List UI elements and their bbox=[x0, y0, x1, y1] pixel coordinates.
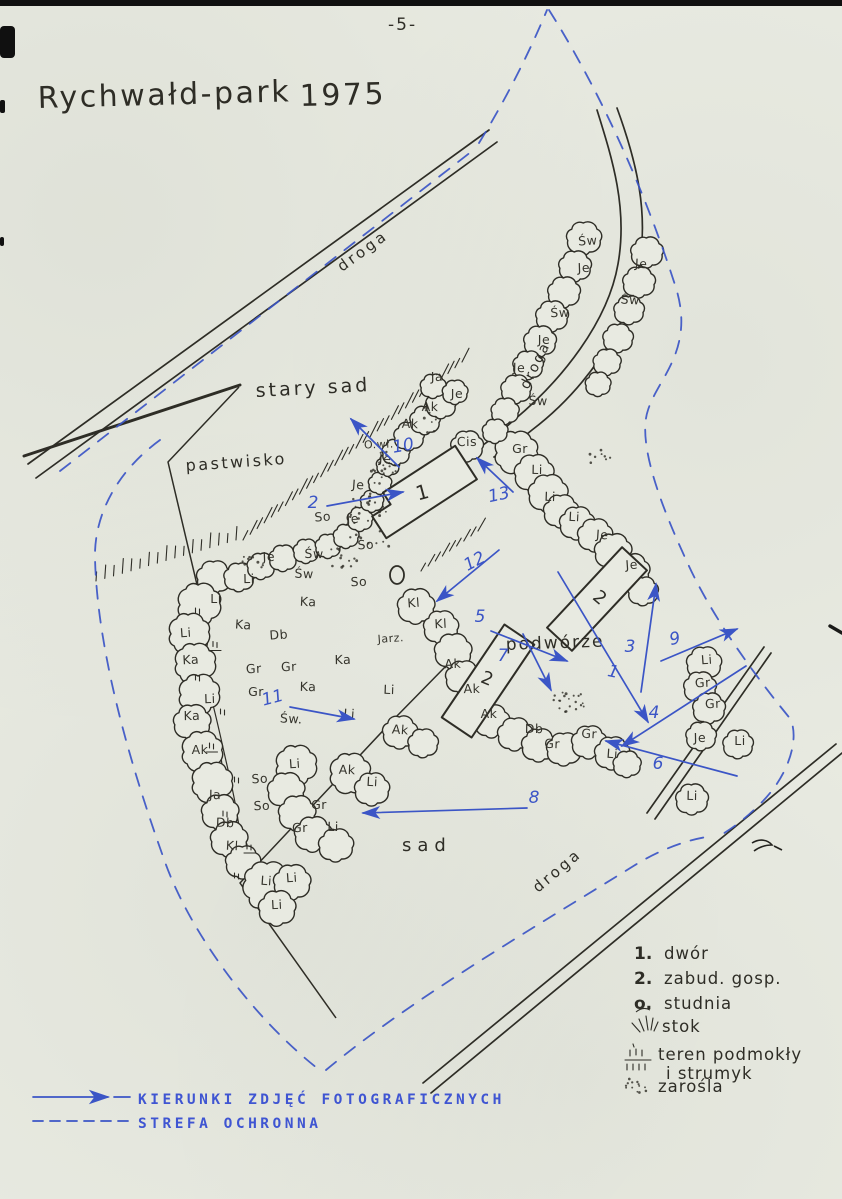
scrub-dot bbox=[426, 431, 429, 434]
photo-direction-arrows: 12345678910111213 bbox=[260, 419, 746, 813]
scrub-dot bbox=[375, 542, 377, 544]
scrub-dot bbox=[580, 693, 582, 695]
slope-hatch-stroke bbox=[307, 476, 313, 488]
map-label: droga bbox=[334, 226, 392, 275]
slope-hatch-stroke bbox=[210, 533, 211, 548]
tree-label: Ak bbox=[481, 706, 498, 721]
scrub-dot bbox=[582, 702, 584, 704]
slope-hatch-stroke bbox=[328, 460, 334, 471]
tree-label: Li bbox=[210, 591, 221, 606]
tree-label: Li bbox=[606, 746, 618, 762]
edge-mark bbox=[830, 626, 842, 633]
scrub-dot bbox=[381, 469, 384, 472]
scrub-dot bbox=[353, 557, 355, 559]
legend-label-slope: stok bbox=[662, 1017, 701, 1036]
scrub-dot bbox=[330, 548, 332, 550]
scrub-dot bbox=[378, 514, 381, 517]
page-year: 1975 bbox=[299, 77, 386, 114]
tree-label: O.wł. bbox=[364, 437, 394, 451]
slope-hatch-stroke bbox=[243, 531, 248, 540]
tree-cloud bbox=[482, 419, 508, 443]
tree-label: Św bbox=[578, 233, 598, 249]
slope-hatch-stroke bbox=[413, 390, 419, 402]
tree-label: Św bbox=[304, 546, 323, 561]
tree-label: Li bbox=[285, 870, 297, 886]
scrub-dot bbox=[252, 556, 255, 559]
scrub-dot bbox=[379, 530, 381, 532]
tree-cloud bbox=[585, 372, 611, 396]
tree-label: Kl bbox=[407, 595, 421, 611]
tree-label: Li bbox=[243, 571, 255, 586]
map-label: sad bbox=[402, 835, 452, 856]
slope-hatch-stroke bbox=[285, 492, 292, 506]
slope-hatch-stroke bbox=[335, 450, 343, 465]
slope-hatch-stroke bbox=[278, 502, 283, 511]
slope-hatch-stroke bbox=[300, 479, 308, 494]
scrub-dot bbox=[392, 471, 394, 473]
scrub-icon bbox=[625, 1078, 647, 1094]
slope-hatch-stroke bbox=[105, 565, 106, 578]
photo-arrow-number-12: 12 bbox=[460, 548, 488, 576]
tree-label: Ka bbox=[300, 594, 317, 610]
photo-arrow-number-13: 13 bbox=[486, 483, 511, 507]
scrub-dot bbox=[340, 554, 342, 556]
photo-arrow-number-3: 3 bbox=[625, 637, 636, 657]
tree-label: Gr bbox=[694, 675, 711, 691]
tree-label: Li bbox=[383, 682, 395, 697]
slope-hatch-stroke bbox=[377, 419, 383, 431]
scrub-dot bbox=[638, 1091, 641, 1094]
scrub-dot bbox=[242, 560, 244, 562]
slope-hatch-stroke bbox=[166, 546, 167, 561]
tree-label: Gr bbox=[311, 797, 327, 812]
slope-hatch-stroke bbox=[201, 540, 202, 551]
scrub-dot bbox=[382, 506, 384, 508]
tree-label: Ka bbox=[300, 679, 317, 694]
tree-label: Li bbox=[366, 774, 378, 790]
slope-hatch-stroke bbox=[236, 527, 237, 540]
slope-hatch-stroke bbox=[157, 553, 158, 564]
tree-label: Św bbox=[294, 566, 314, 582]
marsh-icon bbox=[625, 1044, 651, 1070]
tree-label: Ka bbox=[182, 652, 199, 668]
slope-hatch-stroke bbox=[450, 541, 456, 551]
protection-zone-label: STREFA OCHRONNA bbox=[138, 1116, 321, 1132]
tree-label: Db bbox=[269, 626, 289, 642]
photo-arrow-number-8: 8 bbox=[529, 788, 540, 808]
scrub-dot bbox=[256, 561, 259, 564]
scrub-dot bbox=[568, 698, 570, 700]
slope-hatch-stroke bbox=[271, 505, 277, 517]
scrub-dot bbox=[372, 469, 374, 471]
photo-arrow-number-1: 1 bbox=[606, 661, 621, 683]
tree-label: Li bbox=[531, 462, 543, 477]
scanned-map-page: LiKaLiKaAkJaDbKlLiLiLiJeLiLiŚwŚwKaKaDbGr… bbox=[0, 0, 842, 1199]
tree-label: Gr bbox=[281, 659, 298, 675]
slope-hatch-stroke bbox=[184, 546, 185, 555]
scrub-dot bbox=[355, 559, 358, 562]
scrub-dot bbox=[628, 1078, 631, 1081]
tree-label: Św. bbox=[280, 710, 303, 726]
scrub-dot bbox=[554, 694, 556, 696]
scrub-dot bbox=[553, 699, 555, 701]
tree-label: Je bbox=[450, 386, 463, 401]
tree-label: Gr bbox=[292, 820, 308, 835]
slope-hatch-stroke bbox=[464, 529, 471, 541]
slope-hatch-stroke bbox=[398, 403, 404, 414]
tree-label: Je bbox=[261, 549, 275, 564]
tree-label: Gr bbox=[512, 441, 528, 456]
tree-cloud bbox=[593, 349, 621, 376]
scrub-dot bbox=[558, 700, 560, 702]
scrub-dot bbox=[355, 506, 357, 508]
scrub-dot bbox=[374, 501, 376, 503]
slope-hatch-stroke bbox=[250, 521, 257, 535]
scrub-dot bbox=[627, 1082, 629, 1084]
scrub-dot bbox=[339, 557, 342, 560]
tree-label: Li bbox=[734, 733, 745, 748]
map-label: pastwisko bbox=[185, 449, 288, 475]
photo-arrow-8 bbox=[363, 808, 527, 813]
tree-label: Ja bbox=[208, 787, 222, 802]
scrub-dot bbox=[609, 457, 611, 459]
tree-label: Li bbox=[327, 819, 339, 834]
scrub-dot bbox=[243, 556, 245, 558]
tree-label: Kl bbox=[434, 616, 447, 632]
tree-label: Ak bbox=[422, 399, 439, 414]
slope-hatch-stroke bbox=[321, 463, 328, 477]
scrub-dot bbox=[604, 455, 606, 457]
legend-label-well: studnia bbox=[664, 994, 732, 1013]
scrub-dot bbox=[369, 492, 372, 495]
tree-label: Li bbox=[544, 489, 556, 504]
scrub-dot bbox=[384, 468, 387, 471]
tree-label: Je bbox=[576, 260, 590, 275]
tree-label: Li bbox=[686, 788, 698, 803]
legend-key-farm: 2. bbox=[634, 969, 652, 989]
tree-label: Ka bbox=[334, 652, 351, 667]
tree-label: Św bbox=[528, 393, 548, 409]
scrub-dot bbox=[636, 1091, 638, 1093]
scrub-dot bbox=[385, 511, 387, 513]
slope-hatch-stroke bbox=[428, 554, 435, 566]
slope-hatch-stroke bbox=[314, 473, 319, 482]
tree-label: Gr bbox=[581, 726, 598, 742]
scrub-dot bbox=[636, 1081, 638, 1083]
scrub-dot bbox=[600, 449, 603, 452]
marsh-tick bbox=[213, 642, 217, 648]
scrub-dot bbox=[569, 705, 571, 707]
map-label: stary sad bbox=[255, 374, 371, 402]
tree-label: Li bbox=[271, 897, 283, 913]
photo-legend: KIERUNKI ZDJĘĆ FOTOGRAFICZNYCH STREFA OC… bbox=[33, 1090, 505, 1132]
scrub-dot bbox=[638, 1083, 640, 1085]
slope-hatch-stroke bbox=[257, 518, 263, 529]
marsh-tick bbox=[221, 709, 225, 715]
slope-hatch-stroke bbox=[455, 358, 460, 367]
scrub-dot bbox=[378, 510, 381, 513]
tree-cloud bbox=[408, 729, 439, 758]
scrub-dot bbox=[431, 421, 433, 423]
scrub-dot bbox=[435, 419, 437, 421]
scrub-dot bbox=[352, 498, 354, 500]
scrub-dot bbox=[368, 500, 370, 502]
scrub-dot bbox=[382, 541, 384, 543]
scrub-dot bbox=[395, 470, 397, 472]
scrub-dot bbox=[381, 476, 383, 478]
photo-arrow-number-9: 9 bbox=[668, 628, 683, 650]
tree-label: Cis bbox=[457, 434, 477, 449]
map-legend: 1. dwór 2. zabud. gosp. o. studnia stok … bbox=[625, 944, 802, 1096]
scrub-dot bbox=[355, 533, 358, 536]
tree-label: Ka bbox=[183, 708, 200, 723]
page-title: Rychwałd-park bbox=[37, 74, 291, 116]
slope-hatch-stroke bbox=[471, 527, 476, 536]
slope-hatch-stroke bbox=[293, 489, 299, 500]
map-label: droga bbox=[529, 845, 585, 896]
slope-hatch-stroke bbox=[462, 348, 469, 362]
tree-label: So bbox=[350, 574, 367, 590]
scrub-dot bbox=[601, 453, 603, 455]
scrub-dot bbox=[378, 482, 381, 485]
slope-hatch-stroke bbox=[131, 559, 132, 571]
scrub-dot bbox=[367, 520, 369, 522]
tree-label: Ka bbox=[234, 616, 252, 632]
tree-label: Jarz. bbox=[376, 631, 404, 646]
scrub-dot bbox=[644, 1086, 646, 1088]
photo-arrow-number-10: 10 bbox=[391, 434, 416, 457]
tree-label: Ak bbox=[339, 762, 357, 778]
tree-label: Db bbox=[525, 721, 544, 736]
scrub-dot bbox=[383, 472, 385, 474]
slope-hatch-stroke bbox=[370, 421, 378, 436]
tree-label: Db bbox=[216, 815, 235, 831]
scrub-dot bbox=[575, 708, 577, 710]
scrub-dot bbox=[583, 706, 585, 708]
slope-hatch-stroke bbox=[406, 393, 414, 408]
tree-label: Gr bbox=[544, 736, 561, 752]
scrub-dot bbox=[423, 417, 426, 420]
protection-zone-boundary bbox=[60, 10, 794, 1072]
slope-hatch-stroke bbox=[421, 563, 426, 571]
legend-label-scrub: zarośla bbox=[658, 1077, 724, 1096]
tree-label: Li bbox=[179, 625, 191, 641]
slope-hatch-stroke bbox=[448, 361, 454, 373]
photo-arrow-number-7: 7 bbox=[498, 646, 509, 666]
slope-hatch-stroke bbox=[435, 552, 440, 561]
pen-scribble bbox=[752, 840, 782, 851]
tree-label: Św bbox=[550, 305, 569, 320]
scrub-dot bbox=[260, 566, 262, 568]
slope-hatch-stroke bbox=[140, 559, 141, 568]
tree-label: Ak bbox=[391, 721, 409, 737]
tree-clouds bbox=[169, 222, 753, 926]
tree-cloud bbox=[603, 324, 634, 353]
tree-label: Ak bbox=[192, 742, 209, 757]
slope-hatch-stroke bbox=[442, 543, 449, 556]
scrub-dot bbox=[558, 707, 560, 709]
tree-label: Je bbox=[351, 477, 365, 493]
tree-label: So bbox=[357, 537, 374, 553]
tree-label: Kl bbox=[226, 838, 239, 854]
photo-arrow-number-5: 5 bbox=[475, 607, 486, 627]
marsh-tick bbox=[235, 777, 239, 783]
scrub-dot bbox=[331, 565, 334, 568]
tree-label: So bbox=[251, 771, 268, 787]
scrub-dot bbox=[625, 1087, 627, 1089]
tree-label: So bbox=[253, 798, 270, 814]
slope-hatch-stroke bbox=[391, 406, 398, 420]
slope-hatch-stroke bbox=[175, 546, 176, 558]
scrub-dot bbox=[247, 558, 249, 560]
legend-label-marsh: teren podmokły bbox=[658, 1045, 802, 1064]
photo-directions-label: KIERUNKI ZDJĘĆ FOTOGRAFICZNYCH bbox=[138, 1090, 505, 1108]
scrub-dot bbox=[243, 563, 246, 566]
tree-label: Ak bbox=[402, 416, 420, 432]
scrub-dot bbox=[573, 695, 575, 697]
scrub-dot bbox=[349, 536, 351, 538]
slope-hatch-stroke bbox=[192, 540, 193, 553]
scrub-dot bbox=[336, 547, 339, 550]
park-map-drawing: LiKaLiKaAkJaDbKlLiLiLiJeLiLiŚwŚwKaKaDbGr… bbox=[0, 0, 842, 1199]
scrub-dot bbox=[589, 453, 592, 456]
tree-label: Ja bbox=[430, 369, 444, 384]
legend-label-manor: dwór bbox=[664, 944, 709, 963]
tree-label: Gr bbox=[245, 661, 262, 677]
slope-hatch-stroke bbox=[349, 445, 354, 454]
tree-label: Je bbox=[345, 511, 359, 527]
scrub-dot bbox=[645, 1090, 648, 1093]
tree-label: Gr bbox=[705, 696, 722, 712]
scrub-dot bbox=[262, 564, 264, 566]
scrub-dot bbox=[564, 710, 566, 712]
tree-label: Li bbox=[260, 873, 272, 889]
scrub-dot bbox=[574, 701, 576, 703]
tree-label: Li bbox=[568, 509, 580, 525]
scrub-dot bbox=[631, 1081, 633, 1083]
slope-hatch-stroke bbox=[114, 565, 115, 576]
scrub-dot bbox=[605, 458, 607, 460]
photo-arrow-number-11: 11 bbox=[260, 686, 286, 711]
scrub-dot bbox=[340, 566, 343, 569]
tree-label: Li bbox=[700, 652, 712, 668]
scrub-dot bbox=[387, 545, 390, 548]
scrub-dot bbox=[562, 692, 564, 694]
slope-hatch-stroke bbox=[342, 447, 348, 459]
scrub-dot bbox=[577, 695, 579, 697]
slope-hatch-stroke bbox=[384, 416, 389, 425]
tree-label: Li bbox=[288, 756, 300, 772]
scrub-dot bbox=[367, 503, 370, 506]
scrub-dot bbox=[594, 456, 596, 458]
scrub-dot bbox=[625, 1085, 627, 1087]
slope-hatch-stroke bbox=[356, 434, 363, 448]
scrub-dot bbox=[350, 565, 352, 567]
photo-arrow-number-4: 4 bbox=[649, 703, 660, 723]
well-symbol bbox=[390, 566, 404, 584]
page-number: -5- bbox=[388, 15, 417, 35]
slope-hatch-stroke bbox=[264, 508, 272, 523]
photo-arrow-number-6: 6 bbox=[653, 754, 664, 774]
tree-label: Św bbox=[620, 291, 640, 307]
legend-key-manor: 1. bbox=[634, 944, 652, 964]
scrub-dot bbox=[631, 1087, 633, 1089]
scrub-dot bbox=[590, 461, 593, 464]
tree-label: Je bbox=[634, 256, 648, 272]
scrub-dot bbox=[433, 430, 435, 432]
scrub-dot bbox=[369, 495, 371, 497]
photo-arrow-number-2: 2 bbox=[308, 493, 319, 513]
scrub-dot bbox=[565, 692, 568, 695]
scrub-dot bbox=[580, 704, 582, 706]
slope-hatch-stroke bbox=[219, 533, 220, 545]
scrub-dot bbox=[563, 695, 566, 698]
slope-hatch-stroke bbox=[227, 534, 228, 543]
legend-label-farm: zabud. gosp. bbox=[664, 969, 782, 988]
tree-label: Li bbox=[204, 691, 216, 706]
slope-hatch-stroke bbox=[122, 559, 123, 574]
tree-label: Je bbox=[595, 527, 609, 543]
tree-label: Je bbox=[693, 730, 707, 745]
tree-label: Je bbox=[624, 557, 638, 573]
slope-hatch-stroke bbox=[149, 552, 150, 565]
scrub-dot bbox=[435, 416, 437, 418]
slope-hatch-stroke bbox=[457, 538, 462, 546]
scrub-dot bbox=[374, 482, 376, 484]
slope-hatch-stroke bbox=[478, 518, 485, 531]
tree-label: Ak bbox=[444, 656, 462, 672]
scrub-dot bbox=[348, 560, 350, 562]
